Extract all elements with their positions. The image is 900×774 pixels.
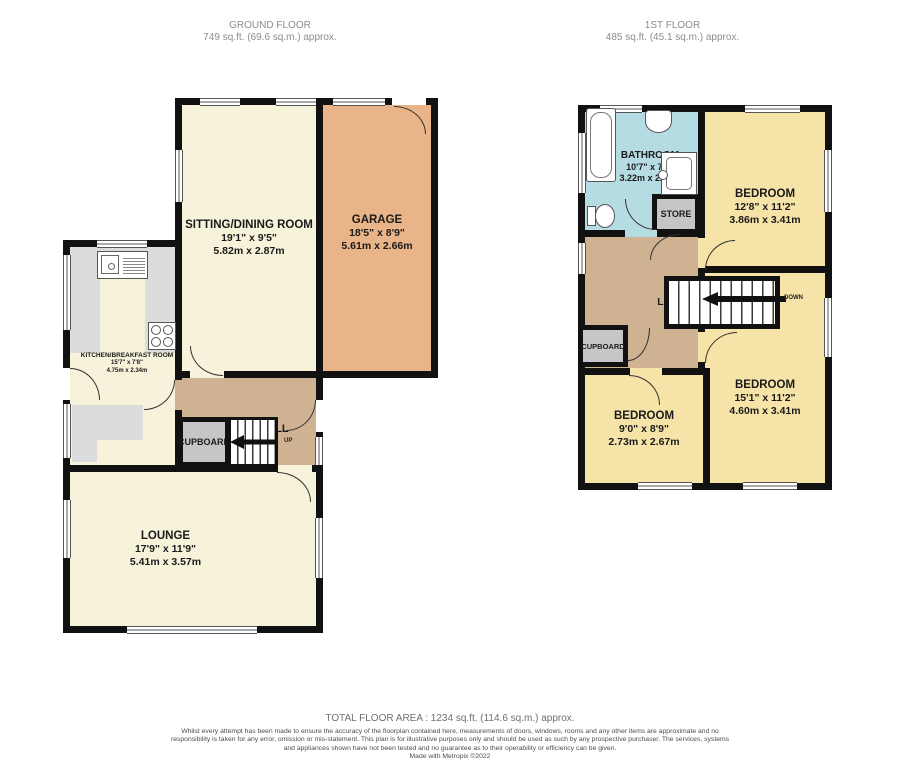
first-floor-title: 1ST FLOOR: [490, 20, 855, 32]
window: [824, 150, 832, 212]
floorplan-canvas: GROUND FLOOR 749 sq.ft. (69.6 sq.m.) app…: [0, 0, 900, 774]
door-opening: [392, 98, 426, 105]
room-garage: GARAGE 18'5" x 8'9" 5.61m x 2.66m: [316, 98, 438, 378]
room-bedroom-front-label: BEDROOM 12'8" x 11'2" 3.86m x 3.41m: [729, 187, 800, 227]
door-opening: [698, 332, 705, 362]
cupboard-first: CUPBOARD: [578, 325, 628, 367]
total-floor-area: TOTAL FLOOR AREA : 1234 sq.ft. (114.6 sq…: [170, 713, 730, 725]
window: [745, 105, 800, 113]
disclaimer-text: Whilst every attempt has been made to en…: [170, 728, 730, 753]
hob-ring: [163, 337, 173, 347]
window: [578, 133, 586, 193]
store: STORE: [652, 194, 700, 234]
window: [315, 437, 323, 465]
room-bedroom-rear-label: BEDROOM 15'1" x 11'2" 4.60m x 3.41m: [729, 378, 800, 418]
room-sitting-dining-label: SITTING/DINING ROOM 19'1" x 9'5" 5.82m x…: [185, 218, 313, 258]
kitchen-sink-icon: [97, 251, 148, 279]
bathtub-icon: [586, 108, 616, 182]
window: [63, 255, 71, 330]
window: [315, 518, 323, 578]
wash-basin-icon: [645, 110, 672, 133]
room-sitting-dining: SITTING/DINING ROOM 19'1" x 9'5" 5.82m x…: [175, 98, 323, 378]
hob-ring: [151, 325, 161, 335]
metropix-credit: Made with Metropix ©2022: [170, 753, 730, 761]
window: [333, 98, 385, 106]
window: [97, 240, 147, 248]
stairs-up-label: UP: [284, 438, 292, 444]
door-opening: [625, 230, 657, 237]
room-kitchen-label: KITCHEN/BREAKFAST ROOM 15'7" x 7'8" 4.75…: [74, 352, 180, 375]
bathtub-basin: [590, 112, 612, 178]
ground-floor-area: 749 sq.ft. (69.6 sq.m.) approx.: [70, 32, 470, 44]
shower-icon: [661, 152, 697, 195]
stairs-up-arrow: [228, 434, 280, 450]
door-opening: [630, 368, 662, 375]
door-opening: [63, 368, 70, 400]
ground-floor-title: GROUND FLOOR: [70, 20, 470, 32]
footer: TOTAL FLOOR AREA : 1234 sq.ft. (114.6 sq…: [170, 713, 730, 761]
door-opening: [698, 238, 705, 268]
sink-bowl: [101, 255, 119, 274]
window: [578, 243, 586, 274]
door-opening: [316, 400, 323, 432]
window: [638, 482, 692, 490]
first-floor-header: 1ST FLOOR 485 sq.ft. (45.1 sq.m.) approx…: [490, 20, 855, 44]
shower-knob: [658, 170, 668, 180]
ground-floor-header: GROUND FLOOR 749 sq.ft. (69.6 sq.m.) app…: [70, 20, 470, 44]
hob-ring: [163, 325, 173, 335]
stairs-down-arrow: [698, 291, 788, 307]
window: [63, 500, 71, 558]
window: [824, 298, 832, 357]
window: [127, 626, 257, 634]
kitchen-counter: [72, 440, 97, 462]
stairs-down-label: DOWN: [784, 295, 803, 301]
kitchen-counter: [72, 405, 143, 440]
sink-drainer: [123, 256, 145, 274]
room-lounge-label: LOUNGE 17'9" x 11'9" 5.41m x 3.57m: [130, 529, 201, 569]
window: [276, 98, 316, 106]
hob-ring: [151, 337, 161, 347]
window: [63, 404, 71, 458]
toilet-bowl: [595, 204, 615, 228]
door-opening: [175, 380, 182, 410]
room-garage-label: GARAGE 18'5" x 8'9" 5.61m x 2.66m: [341, 213, 412, 253]
cupboard-ground: CUPBOARD: [178, 417, 230, 467]
window: [200, 98, 240, 106]
window: [743, 482, 797, 490]
sink-drain: [108, 263, 115, 270]
shower-tray: [666, 157, 692, 190]
hob-icon: [148, 322, 176, 350]
window: [175, 150, 183, 202]
first-floor-area: 485 sq.ft. (45.1 sq.m.) approx.: [490, 32, 855, 44]
kitchen-counter: [70, 278, 100, 353]
room-bedroom-small-label: BEDROOM 9'0" x 8'9" 2.73m x 2.67m: [608, 409, 679, 449]
door-opening: [278, 465, 312, 472]
